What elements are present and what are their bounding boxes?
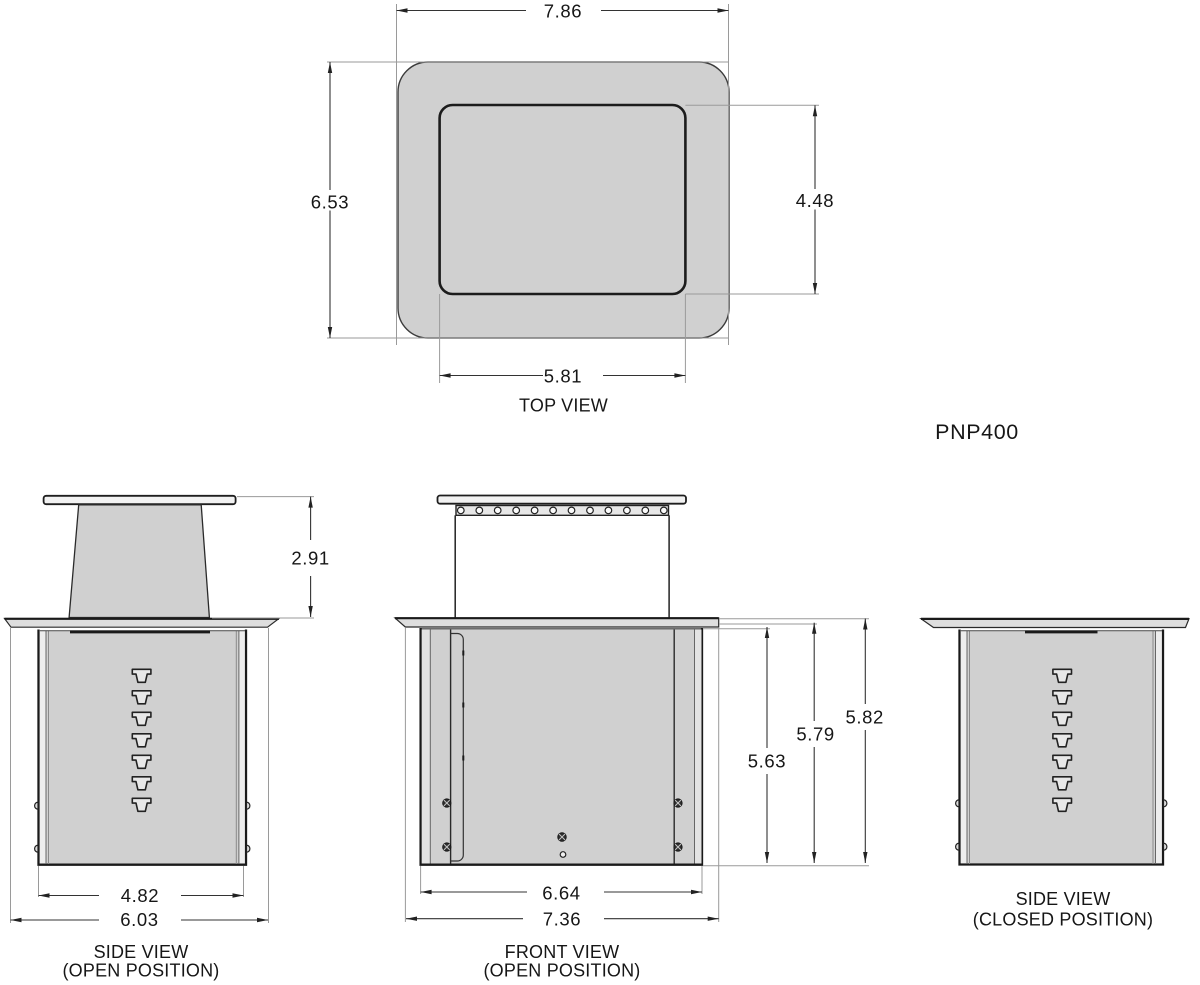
- svg-text:TOP VIEW: TOP VIEW: [519, 396, 608, 416]
- svg-text:SIDE VIEW: SIDE VIEW: [94, 942, 189, 962]
- svg-text:(OPEN POSITION): (OPEN POSITION): [62, 961, 219, 981]
- svg-text:5.63: 5.63: [748, 751, 786, 772]
- svg-text:(OPEN POSITION): (OPEN POSITION): [483, 961, 640, 981]
- svg-text:PNP400: PNP400: [935, 420, 1019, 444]
- svg-text:5.81: 5.81: [544, 366, 582, 387]
- svg-text:4.82: 4.82: [121, 885, 159, 906]
- svg-text:7.86: 7.86: [544, 1, 582, 22]
- svg-text:2.91: 2.91: [291, 548, 329, 569]
- svg-text:4.48: 4.48: [796, 190, 834, 211]
- svg-text:6.64: 6.64: [542, 883, 580, 904]
- svg-text:6.03: 6.03: [120, 909, 158, 930]
- svg-text:FRONT VIEW: FRONT VIEW: [505, 942, 620, 962]
- svg-text:7.36: 7.36: [543, 909, 581, 930]
- svg-text:SIDE VIEW: SIDE VIEW: [1016, 889, 1111, 909]
- svg-text:6.53: 6.53: [311, 192, 349, 213]
- svg-text:5.79: 5.79: [796, 724, 834, 745]
- svg-text:(CLOSED POSITION): (CLOSED POSITION): [973, 910, 1153, 930]
- svg-text:5.82: 5.82: [845, 707, 883, 728]
